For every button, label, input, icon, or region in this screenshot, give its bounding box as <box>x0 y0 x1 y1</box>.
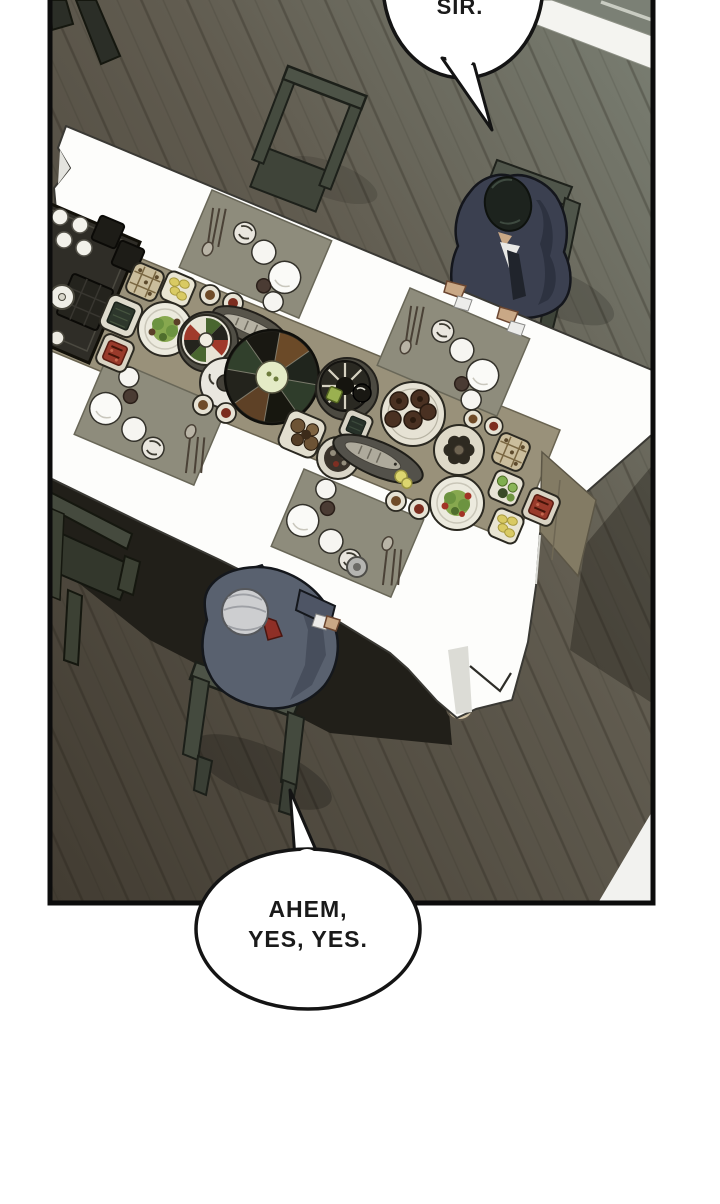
dish-salad-2 <box>430 476 484 530</box>
dish-flower <box>434 425 484 475</box>
dish-gujeolpan-large <box>225 330 319 424</box>
tail-joint-patch <box>294 849 320 875</box>
speech-text-bottom-line1: AHEM, <box>268 896 347 922</box>
dish-striped-bowl <box>320 361 371 411</box>
silver-hair <box>222 589 268 635</box>
dish-shiitake <box>381 382 445 446</box>
tail-joint-patch <box>446 42 474 70</box>
metal-pot-lid <box>347 557 367 577</box>
panel-scene: SIR. AHEM, YES, YES. <box>0 0 720 1204</box>
speech-text-top: SIR. <box>437 0 484 19</box>
speech-text-bottom-line2: YES, YES. <box>248 926 368 952</box>
comic-page: SIR. AHEM, YES, YES. <box>0 0 720 1204</box>
